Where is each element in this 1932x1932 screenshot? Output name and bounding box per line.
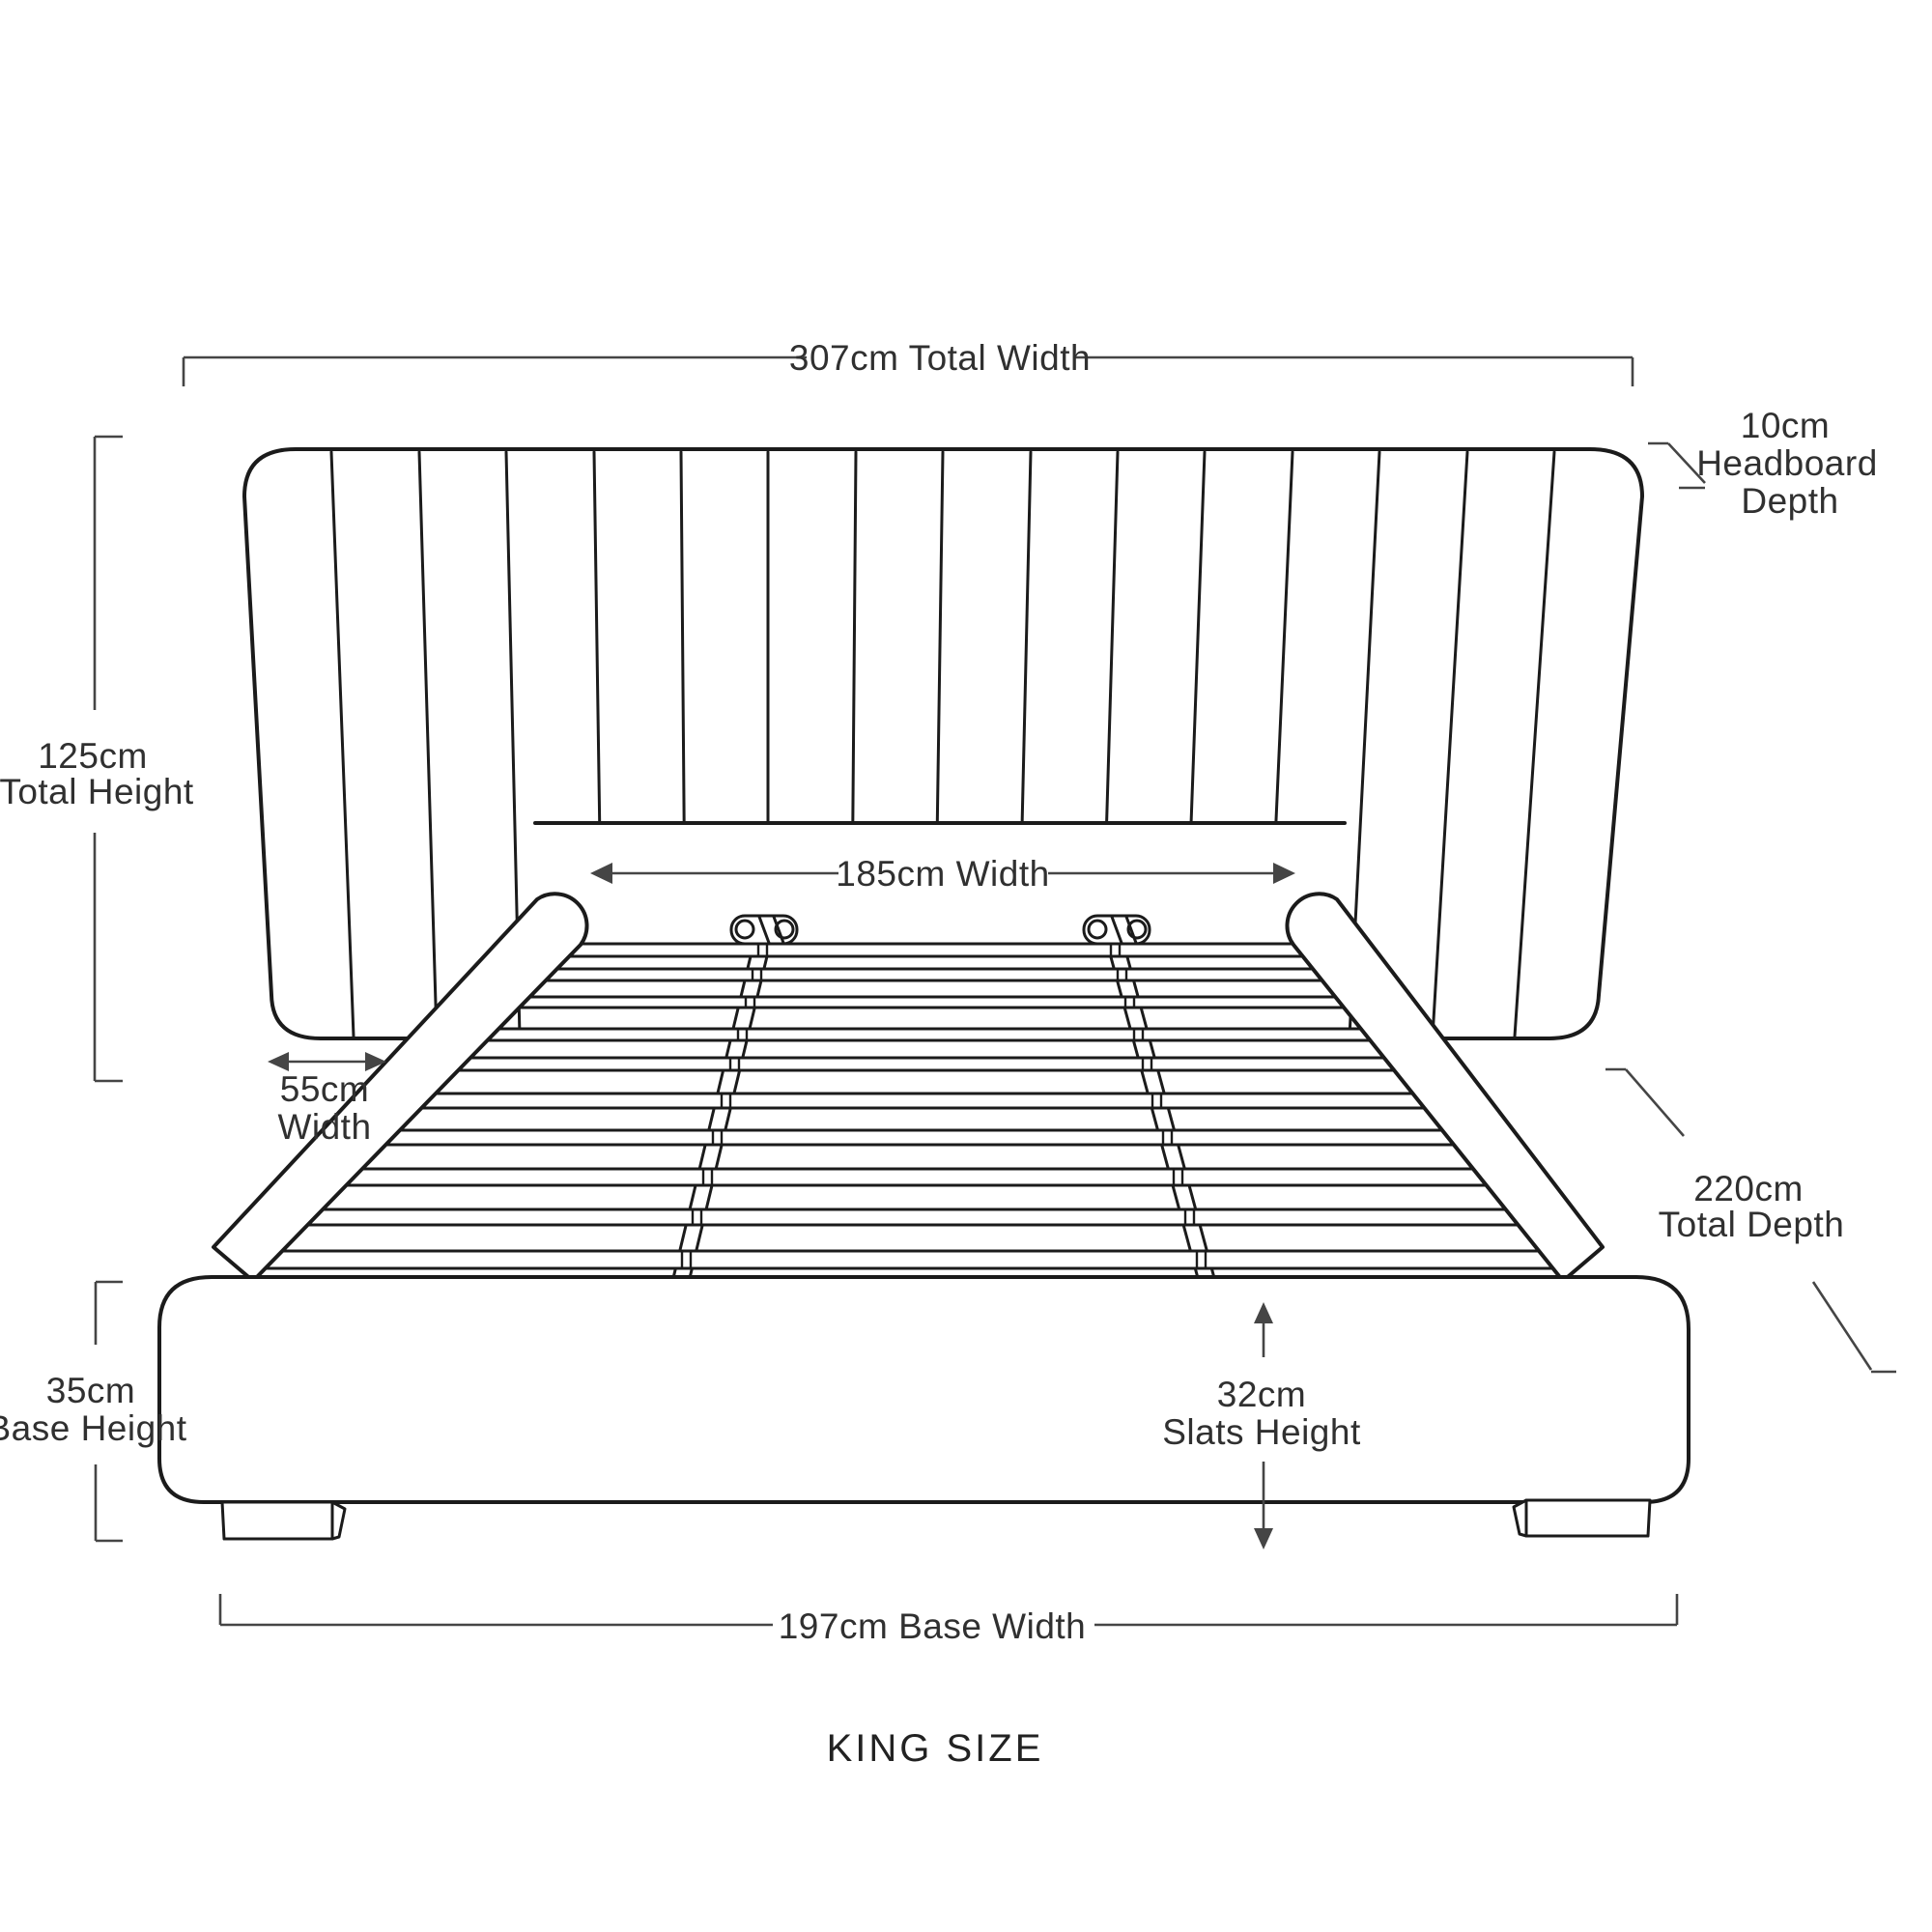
bed-base xyxy=(159,1277,1689,1502)
bed-foot-right xyxy=(1514,1500,1650,1536)
bed-dimension-diagram: 307cm Total Width 10cm Headboard Depth 1… xyxy=(0,0,1932,1932)
dim-base-height-value: 35cm xyxy=(46,1371,135,1410)
dim-wing-width-value: 55cm xyxy=(280,1069,369,1109)
dim-wing-width: 55cm Width xyxy=(268,1052,386,1147)
dim-slats-height-label: Slats Height xyxy=(1162,1412,1361,1452)
dim-total-width: 307cm Total Width xyxy=(184,338,1633,386)
slat-row xyxy=(262,1251,1556,1268)
slat-hinge-bracket-left xyxy=(731,916,797,944)
dim-total-height-label: Total Height xyxy=(0,772,194,811)
dim-total-depth-value: 220cm xyxy=(1693,1169,1804,1208)
dim-base-height-label: Base Height xyxy=(0,1408,187,1448)
diagram-title: KING SIZE xyxy=(827,1727,1044,1770)
dim-total-width-label: 307cm Total Width xyxy=(789,338,1091,378)
slat-hinge-bracket-right xyxy=(1084,916,1150,944)
bed-illustration xyxy=(159,449,1689,1539)
slat-row xyxy=(449,1058,1402,1070)
slat-row xyxy=(508,997,1353,1008)
slat-row xyxy=(340,1169,1492,1185)
dim-headboard-depth-label1: Headboard xyxy=(1696,443,1878,483)
slat-row xyxy=(302,1209,1522,1225)
slat-row xyxy=(556,944,1313,956)
dim-headboard-depth: 10cm Headboard Depth xyxy=(1648,406,1878,521)
dim-total-height: 125cm Total Height xyxy=(0,437,194,1081)
dim-headboard-depth-value: 10cm xyxy=(1741,406,1830,445)
dim-wing-width-label: Width xyxy=(277,1107,371,1147)
dim-inner-width-label: 185cm Width xyxy=(836,854,1049,894)
dim-headboard-depth-label2: Depth xyxy=(1741,481,1838,521)
slat-row xyxy=(413,1094,1432,1108)
dim-total-height-value: 125cm xyxy=(38,736,148,776)
slat-row xyxy=(379,1130,1460,1145)
dim-base-width: 197cm Base Width xyxy=(220,1594,1677,1646)
bed-foot-left xyxy=(222,1502,345,1539)
dim-slats-height-value: 32cm xyxy=(1217,1375,1306,1414)
dim-total-depth-label: Total Depth xyxy=(1659,1205,1845,1244)
dim-base-width-label: 197cm Base Width xyxy=(779,1606,1087,1646)
slat-row xyxy=(477,1029,1378,1040)
slat-row xyxy=(534,969,1332,980)
